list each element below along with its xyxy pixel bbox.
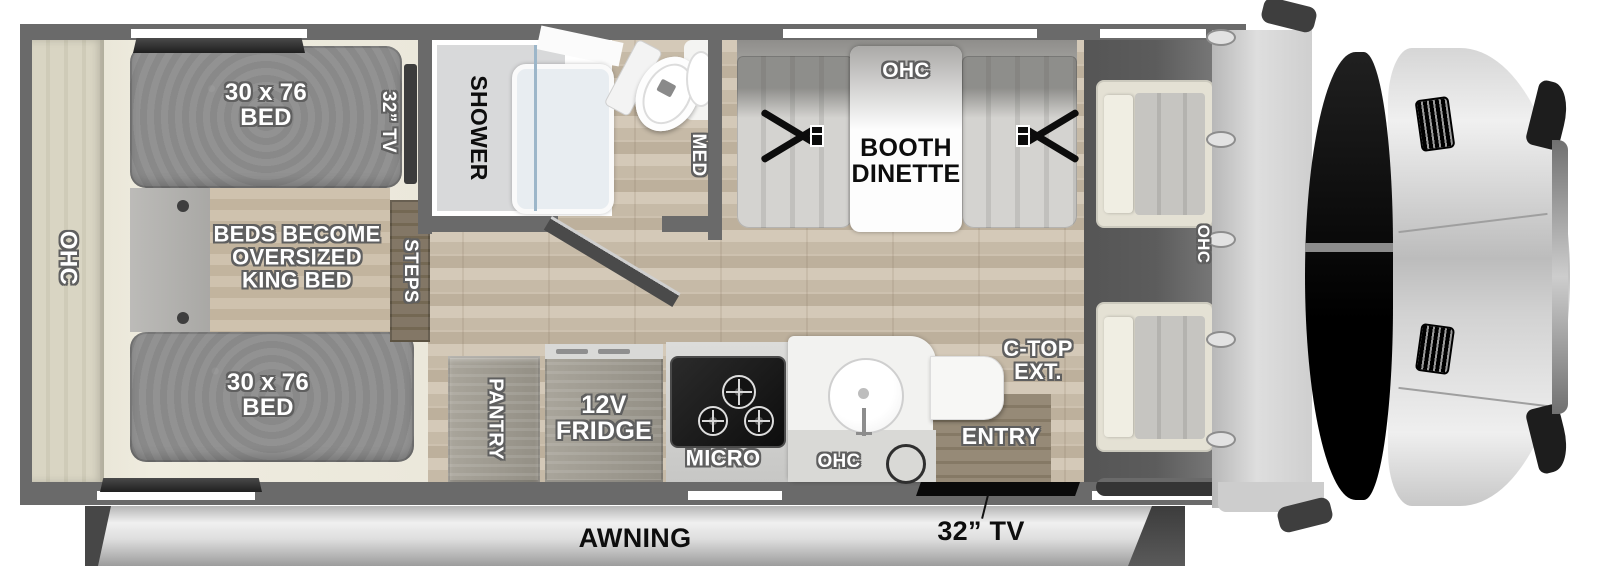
entry-step bbox=[1096, 478, 1222, 496]
shower-glass bbox=[534, 45, 537, 211]
windshield bbox=[1305, 52, 1393, 500]
window-top-bedroom bbox=[131, 29, 307, 38]
fridge-handle-1 bbox=[556, 349, 588, 354]
hood-vent-top bbox=[1415, 96, 1456, 152]
king-bed-note: BEDS BECOME OVERSIZED KING BED bbox=[213, 224, 380, 293]
clearance-light-1 bbox=[1206, 29, 1236, 46]
cab-seat-bottom-back bbox=[1104, 317, 1132, 437]
cab-seat-top-cushion bbox=[1135, 93, 1205, 214]
bath-wall-bottom-left bbox=[418, 216, 558, 232]
bed-bottom-label: 30 x 76 BED bbox=[227, 371, 309, 421]
bath-wall-left bbox=[418, 24, 432, 234]
micro-label: MICRO bbox=[686, 448, 761, 471]
shower-pan bbox=[512, 64, 614, 214]
shower-label: SHOWER bbox=[466, 75, 490, 180]
steps-label: STEPS bbox=[400, 239, 420, 303]
cooktop-burner-2 bbox=[698, 406, 728, 436]
cooktop-burner-3 bbox=[744, 406, 774, 436]
sink-faucet-handle bbox=[856, 432, 872, 435]
cab-seat-top bbox=[1096, 80, 1214, 228]
bed-top-label: 30 x 76 BED bbox=[225, 81, 307, 131]
window-bottom-bedroom bbox=[97, 491, 255, 500]
entry-tv-label: 32” TV bbox=[937, 517, 1024, 545]
bath-wall-right bbox=[708, 24, 722, 240]
sink-drain bbox=[858, 388, 869, 399]
seatbelt-left bbox=[762, 100, 832, 172]
bumper-corner-bottom bbox=[1525, 403, 1574, 475]
stool bbox=[886, 444, 926, 484]
ctop-extension bbox=[930, 356, 1004, 420]
booth-dinette-label: BOOTH DINETTE bbox=[851, 135, 960, 187]
seatbelt-right bbox=[1008, 100, 1078, 172]
kitchen-ohc-label: OHC bbox=[817, 452, 860, 472]
entry-tv bbox=[916, 482, 1080, 496]
nightstand bbox=[130, 188, 210, 332]
window-top-cab bbox=[1100, 29, 1206, 38]
bedroom-window-shade-bottom bbox=[100, 478, 262, 492]
cab-seat-top-back bbox=[1104, 95, 1132, 213]
med-label: MED bbox=[688, 133, 708, 176]
nightstand-knob-1 bbox=[177, 200, 189, 212]
pantry-label: PANTRY bbox=[485, 378, 506, 460]
clearance-light-5 bbox=[1206, 431, 1236, 448]
awning-label: AWNING bbox=[579, 524, 692, 552]
rv-floorplan: AWNING OHC 30 x 76 BED 32” TV BEDS BECOM… bbox=[0, 0, 1600, 585]
cab-seat-bottom bbox=[1096, 302, 1214, 452]
clearance-light-4 bbox=[1206, 331, 1236, 348]
window-top-dinette bbox=[783, 29, 1037, 38]
bedroom-tv bbox=[404, 64, 417, 184]
rear-ohc-label: OHC bbox=[55, 231, 80, 285]
cab-seat-bottom-cushion bbox=[1135, 316, 1205, 439]
bedroom-window-shade-top bbox=[133, 38, 305, 53]
fridge-label: 12V FRIDGE bbox=[556, 392, 652, 444]
window-bottom-kitchen bbox=[688, 491, 782, 500]
windshield-pillar bbox=[1305, 243, 1393, 252]
cooktop-burner-1 bbox=[722, 375, 756, 409]
ctop-ext-label: C-TOP EXT. bbox=[1003, 338, 1073, 384]
dinette-ohc-label: OHC bbox=[882, 60, 930, 82]
hood-vent-bottom bbox=[1415, 323, 1455, 375]
bumper-corner-top bbox=[1525, 79, 1574, 151]
bedroom-tv-label: 32” TV bbox=[378, 91, 398, 153]
bumper-edge bbox=[1552, 140, 1568, 414]
entry-label: ENTRY bbox=[962, 425, 1041, 449]
nightstand-knob-2 bbox=[177, 312, 189, 324]
clearance-light-2 bbox=[1206, 131, 1236, 148]
fridge-handle-2 bbox=[598, 349, 630, 354]
cab-ohc-label: OHC bbox=[1194, 225, 1212, 264]
